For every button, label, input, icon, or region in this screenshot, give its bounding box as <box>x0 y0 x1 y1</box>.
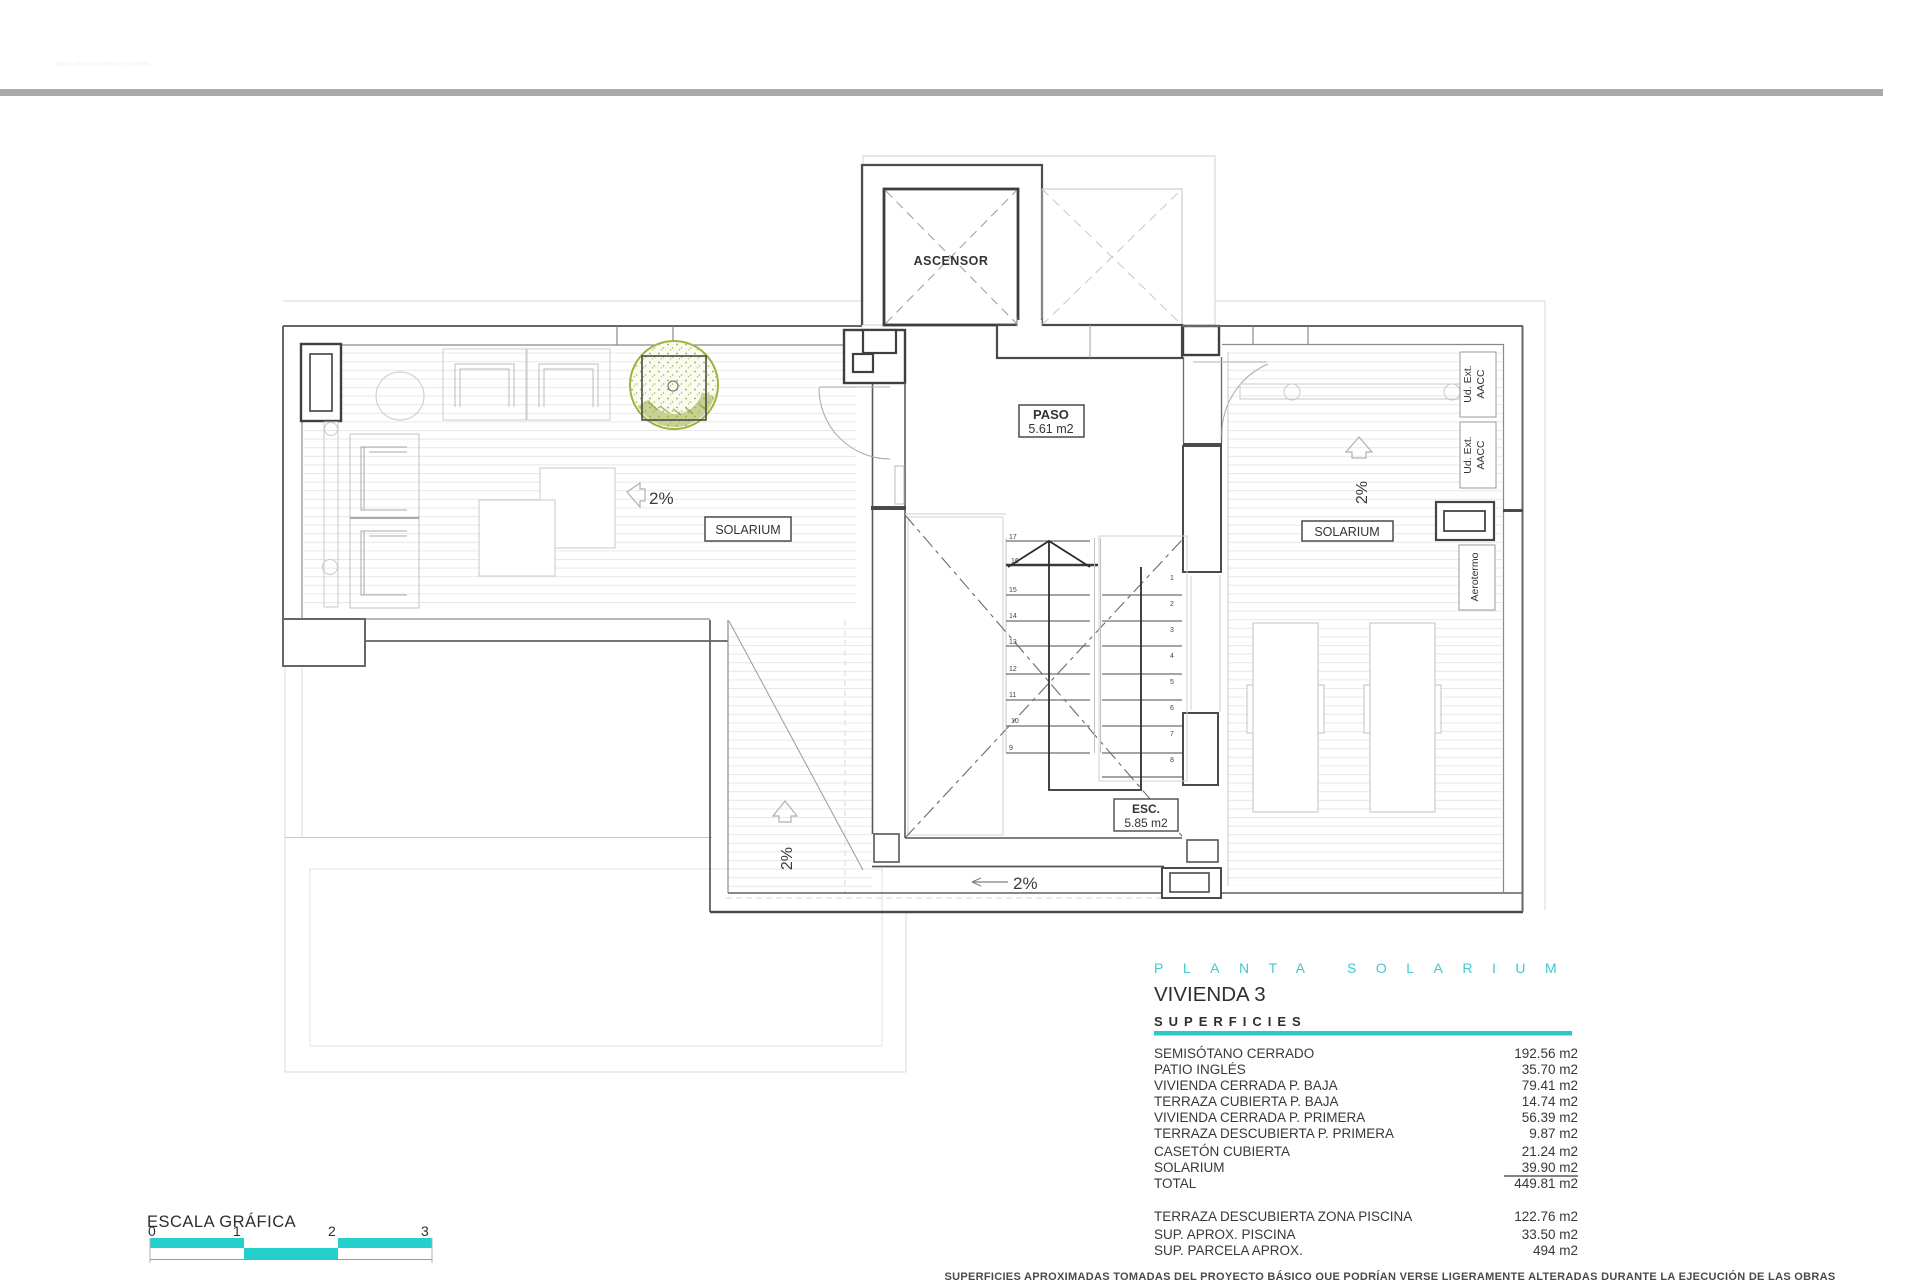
svg-text:plano planta solarium vivienda: plano planta solarium vivienda <box>56 61 150 68</box>
svg-text:3: 3 <box>421 1223 429 1239</box>
svg-text:10: 10 <box>1011 718 1019 725</box>
svg-text:192.56 m2: 192.56 m2 <box>1514 1046 1578 1061</box>
svg-text:13: 13 <box>1009 639 1017 646</box>
svg-text:11: 11 <box>1009 692 1016 699</box>
svg-text:6: 6 <box>1170 705 1174 712</box>
svg-text:35.70 m2: 35.70 m2 <box>1522 1062 1578 1077</box>
svg-text:0: 0 <box>148 1223 156 1239</box>
svg-text:TERRAZA DESCUBIERTA ZONA PISC: TERRAZA DESCUBIERTA ZONA PISCINA <box>1154 1209 1412 1224</box>
svg-text:VIVIENDA 3: VIVIENDA 3 <box>1154 983 1266 1006</box>
svg-text:Aerotermo: Aerotermo <box>1469 552 1481 601</box>
svg-text:15: 15 <box>1009 587 1017 594</box>
svg-text:56.39 m2: 56.39 m2 <box>1522 1110 1578 1125</box>
svg-text:ESCALA GRÁFICA: ESCALA GRÁFICA <box>147 1212 296 1231</box>
svg-text:SUP. APROX. PISCINA: SUP. APROX. PISCINA <box>1154 1227 1296 1242</box>
svg-text:12: 12 <box>1009 666 1017 673</box>
svg-text:SOLARIUM: SOLARIUM <box>1154 1160 1225 1175</box>
svg-text:SEMISÓTANO CERRADO: SEMISÓTANO CERRADO <box>1154 1046 1314 1061</box>
svg-text:ASCENSOR: ASCENSOR <box>914 254 989 268</box>
svg-text:39.90 m2: 39.90 m2 <box>1522 1160 1578 1175</box>
svg-text:449.81 m2: 449.81 m2 <box>1514 1176 1578 1191</box>
svg-text:33.50 m2: 33.50 m2 <box>1522 1227 1578 1242</box>
svg-text:SOLARIUM: SOLARIUM <box>1314 525 1379 539</box>
svg-text:TERRAZA CUBIERTA P. BAJA: TERRAZA CUBIERTA P. BAJA <box>1154 1094 1339 1109</box>
svg-text:1: 1 <box>233 1223 241 1239</box>
svg-text:17: 17 <box>1009 534 1017 541</box>
svg-text:7: 7 <box>1170 731 1174 738</box>
svg-text:SUPERFICIES APROXIMADAS TOMADA: SUPERFICIES APROXIMADAS TOMADAS DEL PROY… <box>944 1270 1835 1280</box>
svg-text:14: 14 <box>1009 613 1017 620</box>
svg-text:AACC: AACC <box>1475 440 1487 470</box>
svg-text:Ud. Ext.: Ud. Ext. <box>1462 436 1474 473</box>
svg-text:8: 8 <box>1170 757 1174 764</box>
svg-text:2%: 2% <box>1013 874 1038 893</box>
svg-text:SUPERFICIES: SUPERFICIES <box>1154 1014 1307 1029</box>
svg-text:9: 9 <box>1009 745 1013 752</box>
svg-text:1: 1 <box>1170 575 1174 582</box>
svg-text:PLANTA SOLARIUM: PLANTA SOLARIUM <box>1154 960 1576 976</box>
svg-text:9.87 m2: 9.87 m2 <box>1529 1126 1578 1141</box>
svg-text:494 m2: 494 m2 <box>1533 1243 1578 1258</box>
svg-text:TOTAL: TOTAL <box>1154 1176 1197 1191</box>
svg-text:TERRAZA DESCUBIERTA P. PRIMERA: TERRAZA DESCUBIERTA P. PRIMERA <box>1154 1126 1394 1141</box>
svg-text:3: 3 <box>1170 627 1174 634</box>
svg-text:CASETÓN CUBIERTA: CASETÓN CUBIERTA <box>1154 1144 1290 1159</box>
svg-text:79.41 m2: 79.41 m2 <box>1522 1078 1578 1093</box>
svg-text:2%: 2% <box>779 847 796 870</box>
svg-text:SOLARIUM: SOLARIUM <box>715 523 780 537</box>
svg-text:5.61 m2: 5.61 m2 <box>1028 422 1073 436</box>
svg-text:5: 5 <box>1170 679 1174 686</box>
svg-text:2%: 2% <box>649 489 674 508</box>
svg-text:2: 2 <box>328 1223 336 1239</box>
svg-text:VIVIENDA CERRADA P. PRIMERA: VIVIENDA CERRADA P. PRIMERA <box>1154 1110 1365 1125</box>
svg-text:Ud. Ext.: Ud. Ext. <box>1462 365 1474 402</box>
svg-text:PASO: PASO <box>1033 407 1069 422</box>
svg-text:AACC: AACC <box>1475 369 1487 399</box>
svg-text:SUP. PARCELA APROX.: SUP. PARCELA APROX. <box>1154 1243 1303 1258</box>
svg-text:4: 4 <box>1170 653 1174 660</box>
svg-text:2%: 2% <box>1354 481 1371 504</box>
svg-text:16: 16 <box>1011 558 1019 565</box>
svg-text:ESC.: ESC. <box>1132 802 1160 816</box>
svg-text:5.85 m2: 5.85 m2 <box>1124 816 1168 830</box>
svg-text:2: 2 <box>1170 601 1174 608</box>
svg-text:PATIO INGLÉS: PATIO INGLÉS <box>1154 1062 1246 1077</box>
svg-text:122.76 m2: 122.76 m2 <box>1514 1209 1578 1224</box>
svg-text:21.24 m2: 21.24 m2 <box>1522 1144 1578 1159</box>
svg-text:14.74 m2: 14.74 m2 <box>1522 1094 1578 1109</box>
svg-text:VIVIENDA CERRADA P. BAJA: VIVIENDA CERRADA P. BAJA <box>1154 1078 1338 1093</box>
